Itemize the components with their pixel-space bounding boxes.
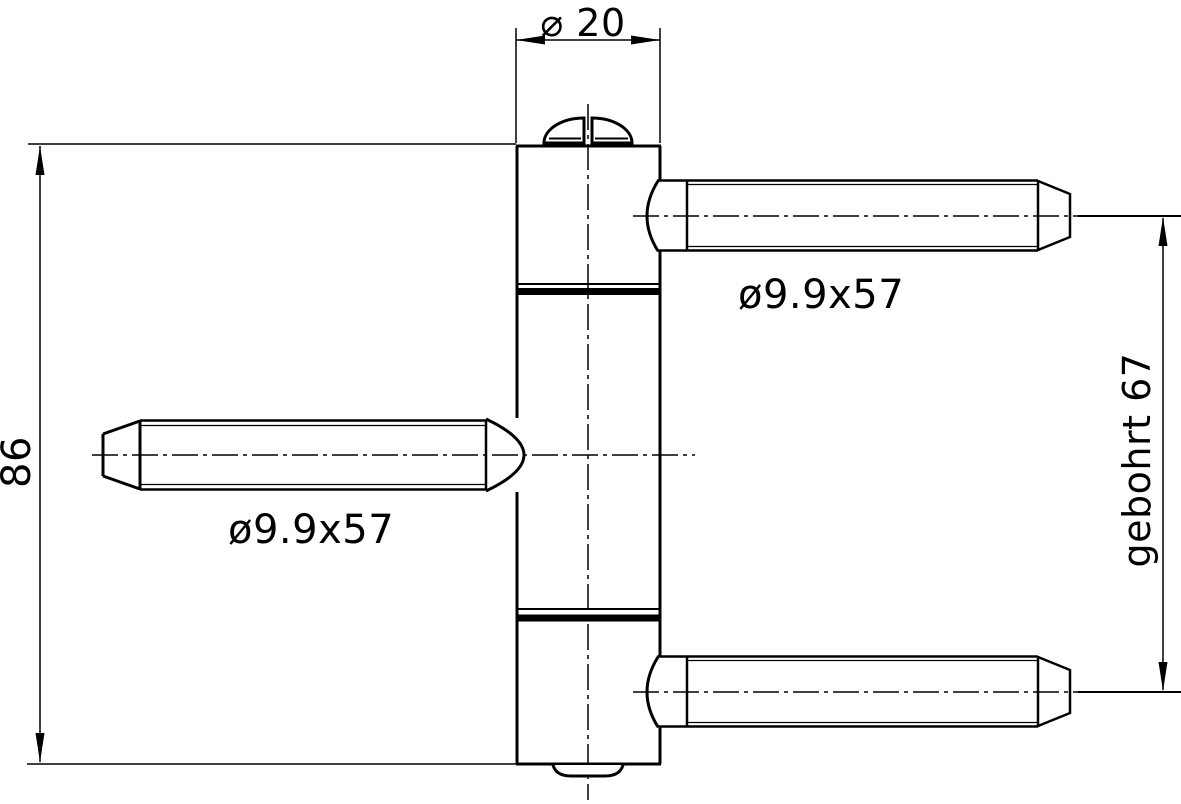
arrowhead-right-icon [631,36,660,45]
arrowhead-down-icon [36,733,45,762]
right-drilled-label: gebohrt 67 [1115,353,1159,568]
arrowhead-down-icon [1159,662,1168,691]
top-diameter-label: ⌀ 20 [540,1,625,45]
hinge-body [516,104,661,800]
arrowhead-up-icon [36,146,45,175]
bottom-right-pin [633,656,1078,727]
left-pin-size-label: ø9.9x57 [228,507,394,553]
hinge-technical-drawing: ⌀ 20 86 gebohrt 67 ø9.9x57 ø9.9x57 [0,0,1181,804]
technical-drawing-page: ⌀ 20 86 gebohrt 67 ø9.9x57 ø9.9x57 [0,0,1181,804]
left-pin [92,419,695,491]
dimension-left-height: 86 [0,144,517,764]
bottom-cap [553,765,623,776]
top-right-pin [633,180,1078,251]
dimension-right-drilled: gebohrt 67 [1078,216,1181,692]
arrowhead-up-icon [1159,217,1168,246]
right-pin-size-label: ø9.9x57 [738,272,904,318]
left-height-label: 86 [0,436,40,488]
